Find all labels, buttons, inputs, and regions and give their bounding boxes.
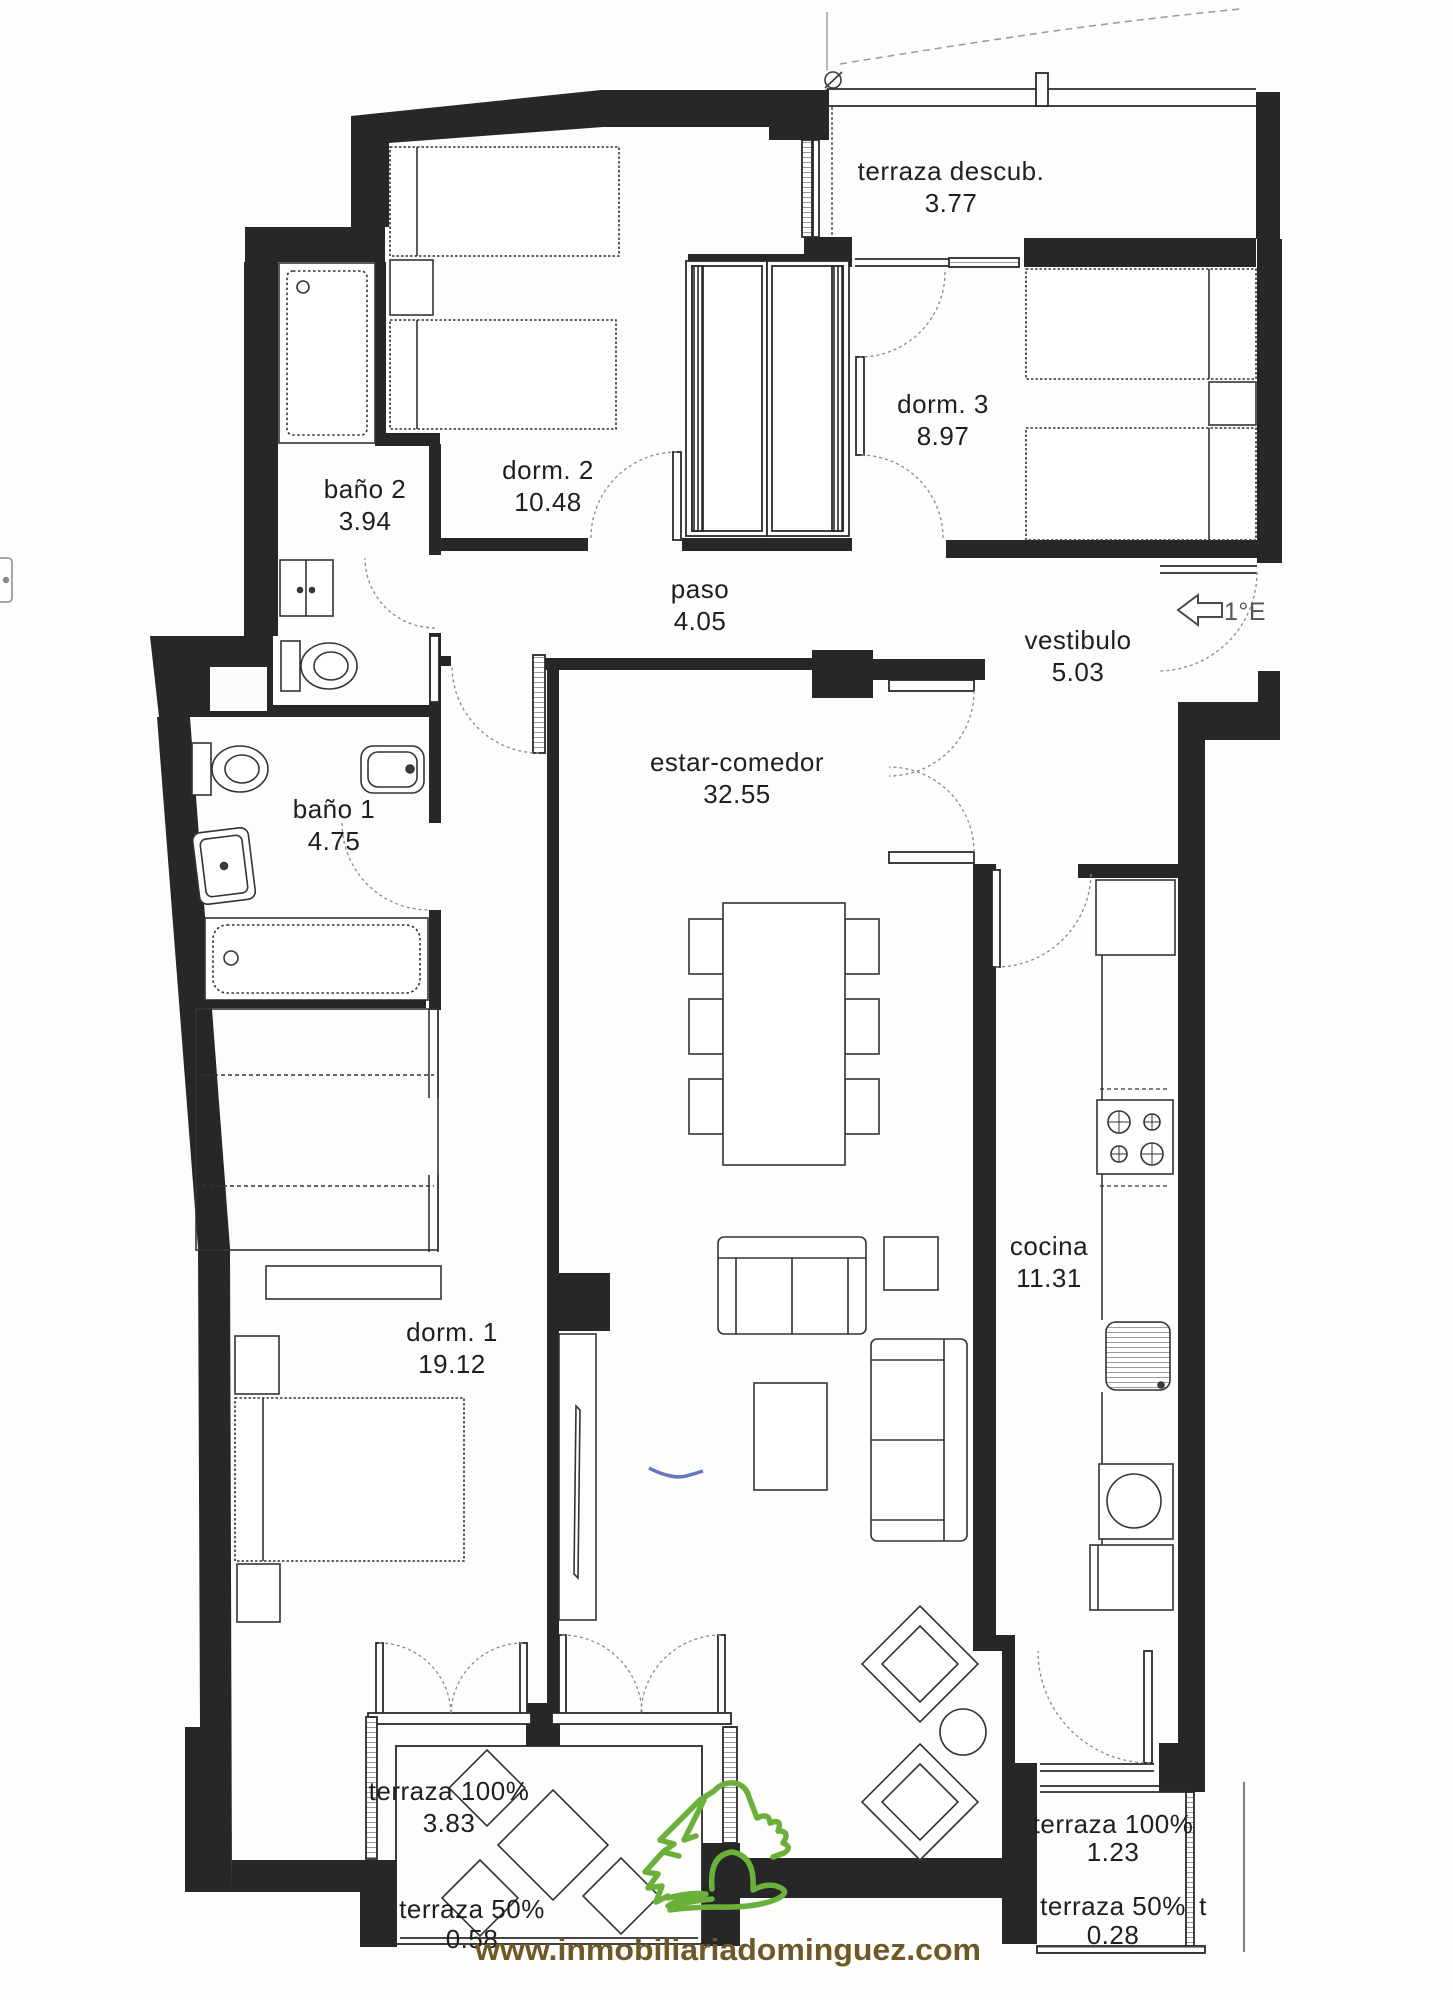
svg-text:baño 1: baño 1 [293,794,376,824]
svg-text:baño 2: baño 2 [324,474,407,504]
svg-text:1.23: 1.23 [1087,1837,1140,1867]
svg-text:10.48: 10.48 [514,487,582,517]
svg-text:terraza 50%: terraza 50% [1040,1891,1186,1921]
svg-text:32.55: 32.55 [703,779,771,809]
svg-text:terraza descub.: terraza descub. [858,156,1045,186]
svg-text:t: t [1199,1891,1207,1921]
svg-text:dorm. 2: dorm. 2 [502,455,594,485]
svg-text:4.05: 4.05 [674,606,727,636]
svg-text:estar-comedor: estar-comedor [650,747,824,777]
svg-text:paso: paso [671,574,729,604]
svg-text:cocina: cocina [1010,1231,1088,1261]
svg-text:dorm. 3: dorm. 3 [897,389,989,419]
svg-text:dorm. 1: dorm. 1 [406,1317,498,1347]
svg-text:5.03: 5.03 [1052,657,1105,687]
svg-text:terraza 50%: terraza 50% [399,1894,545,1924]
svg-text:19.12: 19.12 [418,1349,486,1379]
svg-text:11.31: 11.31 [1016,1263,1082,1293]
svg-text:0.28: 0.28 [1087,1920,1140,1950]
svg-text:3.94: 3.94 [339,506,392,536]
svg-text:4.75: 4.75 [308,826,361,856]
svg-text:3.77: 3.77 [925,188,978,218]
svg-text:terraza 100%: terraza 100% [369,1776,530,1806]
svg-text:8.97: 8.97 [917,421,970,451]
svg-text:1°E: 1°E [1224,598,1266,626]
svg-text:vestibulo: vestibulo [1024,625,1131,655]
svg-text:www.inmobiliariadominguez.com: www.inmobiliariadominguez.com [474,1932,981,1967]
svg-text:3.83: 3.83 [423,1808,476,1838]
svg-text:terraza 100%: terraza 100% [1033,1809,1194,1839]
